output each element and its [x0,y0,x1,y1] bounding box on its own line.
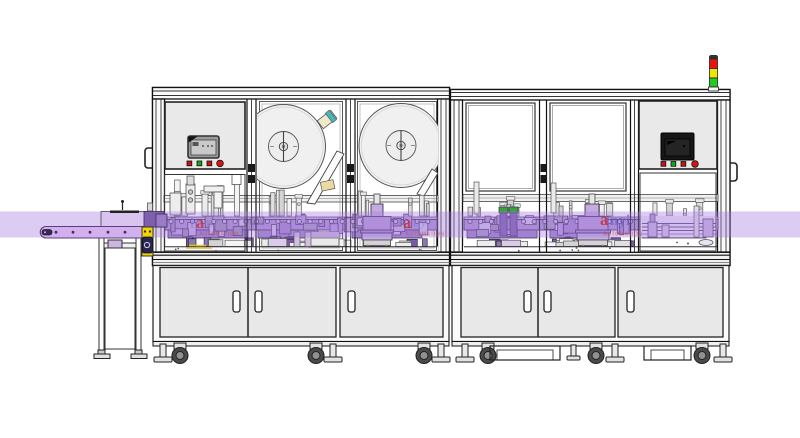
svg-text:nyi: nyi [610,213,630,229]
svg-text:i: i [190,216,194,232]
svg-text:AUTOMATION: AUTOMATION [405,232,444,238]
svg-text:AUTOMATION: AUTOMATION [199,232,238,238]
svg-text:ny: ny [413,215,427,230]
svg-text:a: a [403,213,411,232]
svg-text:a: a [600,210,608,229]
svg-text:a: a [196,213,204,232]
svg-text:AUTOMATION: AUTOMATION [603,232,642,238]
svg-text:n: n [206,215,214,230]
